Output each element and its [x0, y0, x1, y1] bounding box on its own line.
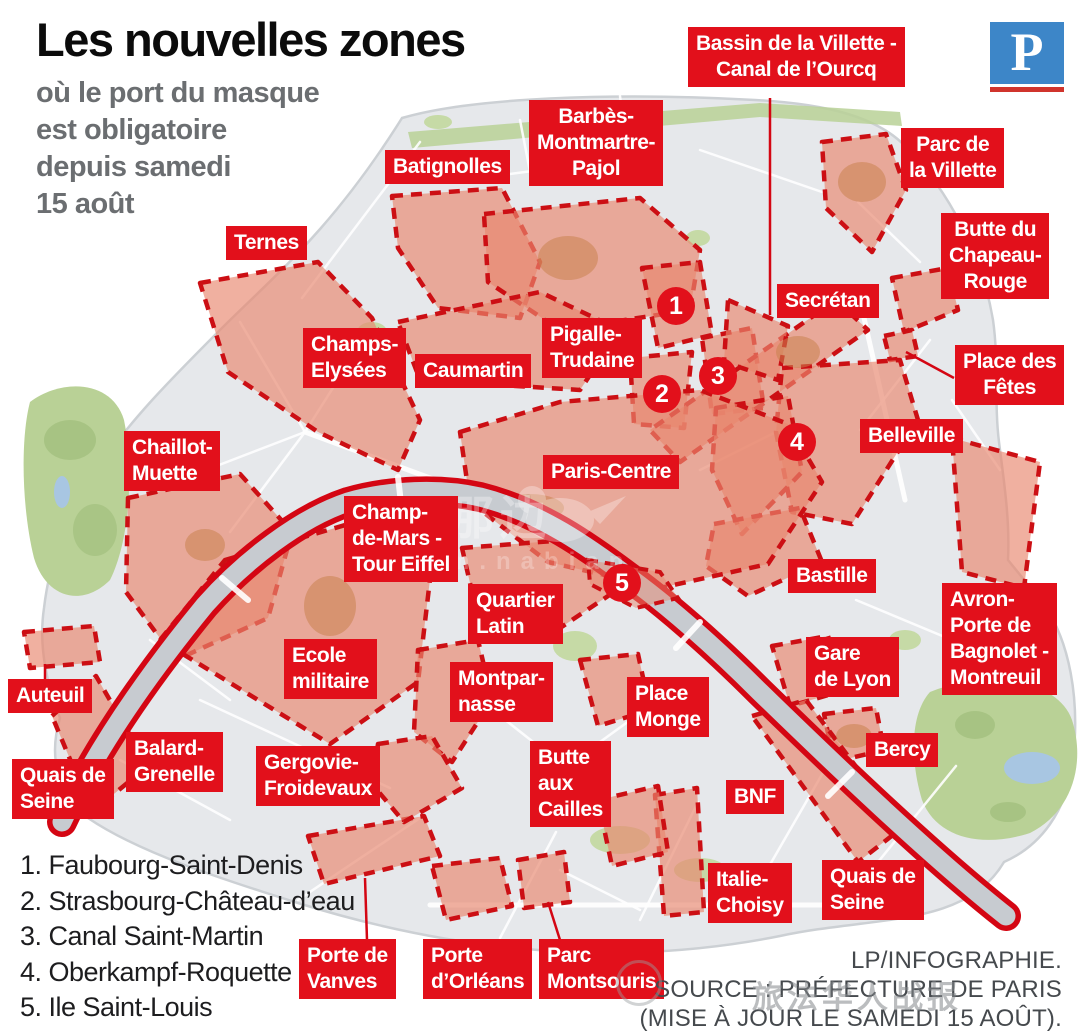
zone-label-line: Bercy [874, 737, 930, 763]
zone-label-line: Cailles [538, 797, 603, 823]
page-title: Les nouvelles zones [36, 12, 465, 67]
zone-label-line: Parc de [909, 132, 996, 158]
page-subtitle: où le port du masqueest obligatoiredepui… [36, 75, 465, 223]
zone-label-chaillot-muette: Chaillot-Muette [124, 431, 220, 491]
zone-label-line: Trudaine [550, 348, 634, 374]
legend-item: 4. Oberkampf-Roquette [20, 955, 355, 991]
header: Les nouvelles zones où le port du masque… [36, 12, 465, 223]
zone-label-line: Muette [132, 461, 212, 487]
zone-label-line: Place des [963, 349, 1056, 375]
map-marker-2: 2 [643, 375, 681, 413]
map-marker-3: 3 [699, 357, 737, 395]
zone-label-balard-grenelle: Balard-Grenelle [126, 732, 223, 792]
zone-label-line: Pajol [537, 156, 655, 182]
zone-label-line: Gare [814, 641, 891, 667]
zone-label-line: Auteuil [16, 683, 84, 709]
zone-label-line: nasse [458, 692, 545, 718]
zone-label-line: Chapeau- [949, 243, 1041, 269]
zone-label-line: la Villette [909, 158, 996, 184]
zone-label-line: Place [635, 681, 701, 707]
zone-label-quais-de-seine-est: Quais deSeine [822, 860, 924, 920]
map-marker-5: 5 [603, 564, 641, 602]
zone-label-line: Secrétan [785, 288, 871, 314]
zone-label-quais-de-seine-ouest: Quais deSeine [12, 759, 114, 819]
zone-label-line: Butte du [949, 217, 1041, 243]
zone-label-bnf: BNF [726, 780, 784, 814]
logo-underline [990, 87, 1064, 92]
zone-label-gergovie-froidevaux: Gergovie-Froidevaux [256, 746, 380, 806]
zone-label-line: Fêtes [963, 375, 1056, 401]
zone-label-line: Paris-Centre [551, 459, 671, 485]
legend-item: 2. Strasbourg-Château-d’eau [20, 884, 355, 920]
zone-label-line: Belleville [868, 423, 955, 449]
zone-label-ecole-militaire: Ecolemilitaire [284, 639, 377, 699]
watermark-logo-circle [616, 960, 662, 1006]
zone-label-line: Montmartre- [537, 130, 655, 156]
zone-label-line: Elysées [311, 358, 398, 384]
numbered-zone-list: 1. Faubourg-Saint-Denis2. Strasbourg-Châ… [20, 848, 355, 1026]
subtitle-line: 15 août [36, 186, 465, 223]
zone-label-line: Italie- [716, 867, 784, 893]
zone-label-parc-de-la-villette: Parc dela Villette [901, 128, 1004, 188]
zone-avron-bagnolet [952, 438, 1040, 588]
zone-label-barbes-montmartre-pajol: Barbès-Montmartre-Pajol [529, 100, 663, 186]
credits-line: LP/INFOGRAPHIE. [640, 946, 1063, 975]
logo-box: P [990, 22, 1064, 84]
zone-label-line: Butte [538, 745, 603, 771]
zone-label-line: Porte de [950, 613, 1049, 639]
zone-label-auteuil: Auteuil [8, 679, 92, 713]
zone-label-line: Quais de [830, 864, 916, 890]
zone-label-line: de-Mars - [352, 526, 450, 552]
map-marker-4: 4 [778, 423, 816, 461]
legend-item: 5. Ile Saint-Louis [20, 990, 355, 1026]
zone-label-line: de Lyon [814, 667, 891, 693]
zone-label-champs-elysees: Champs-Elysées [303, 328, 406, 388]
zone-label-line: Avron- [950, 587, 1049, 613]
zone-label-bassin-villette: Bassin de la Villette -Canal de l’Ourcq [688, 27, 905, 87]
zone-label-line: Seine [20, 789, 106, 815]
watermark-center: 那边 m.nabian [448, 482, 633, 576]
zone-label-place-monge: PlaceMonge [627, 677, 709, 737]
zone-label-secretan: Secrétan [777, 284, 879, 318]
map-marker-1: 1 [657, 287, 695, 325]
zone-label-line: Ecole [292, 643, 369, 669]
zone-label-ternes: Ternes [226, 226, 307, 260]
zone-label-belleville: Belleville [860, 419, 963, 453]
zone-label-line: Latin [476, 614, 555, 640]
zone-label-line: Ternes [234, 230, 299, 256]
zone-label-bercy: Bercy [866, 733, 938, 767]
zone-label-butte-aux-cailles: ButteauxCailles [530, 741, 611, 827]
zone-label-line: Froidevaux [264, 776, 372, 802]
zone-label-line: Monge [635, 707, 701, 733]
zone-label-line: Barbès- [537, 104, 655, 130]
zone-label-montparnasse: Montpar-nasse [450, 662, 553, 722]
zone-label-paris-centre: Paris-Centre [543, 455, 679, 489]
watermark-center-text: 那边 [448, 482, 633, 548]
zone-label-line: Caumartin [423, 358, 523, 384]
zone-label-line: Chaillot- [132, 435, 212, 461]
subtitle-line: depuis samedi [36, 149, 465, 186]
zone-label-porte-d-orleans: Ported’Orléans [423, 939, 532, 999]
le-parisien-logo: P [990, 22, 1064, 92]
zone-label-line: militaire [292, 669, 369, 695]
zone-label-line: Balard- [134, 736, 215, 762]
zone-label-line: Champ- [352, 500, 450, 526]
zone-label-line: aux [538, 771, 603, 797]
zone-label-line: Bagnolet - [950, 639, 1049, 665]
zone-label-italie-choisy: Italie-Choisy [708, 863, 792, 923]
zone-label-line: Quartier [476, 588, 555, 614]
watermark-bottom-text: 旅法华人战报 [752, 972, 962, 1017]
zone-label-line: BNF [734, 784, 776, 810]
zone-label-line: Bassin de la Villette - [696, 31, 897, 57]
zone-label-line: d’Orléans [431, 969, 524, 995]
zone-auteuil [24, 626, 100, 668]
subtitle-line: où le port du masque [36, 75, 465, 112]
zone-label-line: Quais de [20, 763, 106, 789]
zone-label-place-des-fetes: Place desFêtes [955, 345, 1064, 405]
zone-label-line: Montreuil [950, 665, 1049, 691]
legend-item: 3. Canal Saint-Martin [20, 919, 355, 955]
zone-label-line: Porte [431, 943, 524, 969]
zone-label-pigalle-trudaine: Pigalle-Trudaine [542, 318, 642, 378]
zone-label-bastille: Bastille [788, 559, 876, 593]
subtitle-line: est obligatoire [36, 112, 465, 149]
zone-label-line: Champs- [311, 332, 398, 358]
zone-label-line: Rouge [949, 269, 1041, 295]
zone-label-line: Bastille [796, 563, 868, 589]
bois-de-boulogne [24, 386, 130, 595]
zone-label-line: Gergovie- [264, 750, 372, 776]
legend-item: 1. Faubourg-Saint-Denis [20, 848, 355, 884]
zone-label-butte-du-chapeau-rouge: Butte duChapeau-Rouge [941, 213, 1049, 299]
zone-label-caumartin: Caumartin [415, 354, 531, 388]
zone-label-line: Seine [830, 890, 916, 916]
zone-label-line: Montpar- [458, 666, 545, 692]
zone-label-champ-de-mars-tour-eiffel: Champ-de-Mars -Tour Eiffel [344, 496, 458, 582]
zone-label-gare-de-lyon: Garede Lyon [806, 637, 899, 697]
zone-label-line: Grenelle [134, 762, 215, 788]
zone-label-avron-porte-de-bagnolet-montreuil: Avron-Porte deBagnolet -Montreuil [942, 583, 1057, 695]
zone-label-line: Choisy [716, 893, 784, 919]
zone-label-quartier-latin: QuartierLatin [468, 584, 563, 644]
zone-label-line: Pigalle- [550, 322, 634, 348]
logo-letter: P [1011, 25, 1044, 79]
zone-label-line: Tour Eiffel [352, 552, 450, 578]
zone-parc-montsouris [518, 852, 570, 908]
zone-label-line: Canal de l’Ourcq [696, 57, 897, 83]
